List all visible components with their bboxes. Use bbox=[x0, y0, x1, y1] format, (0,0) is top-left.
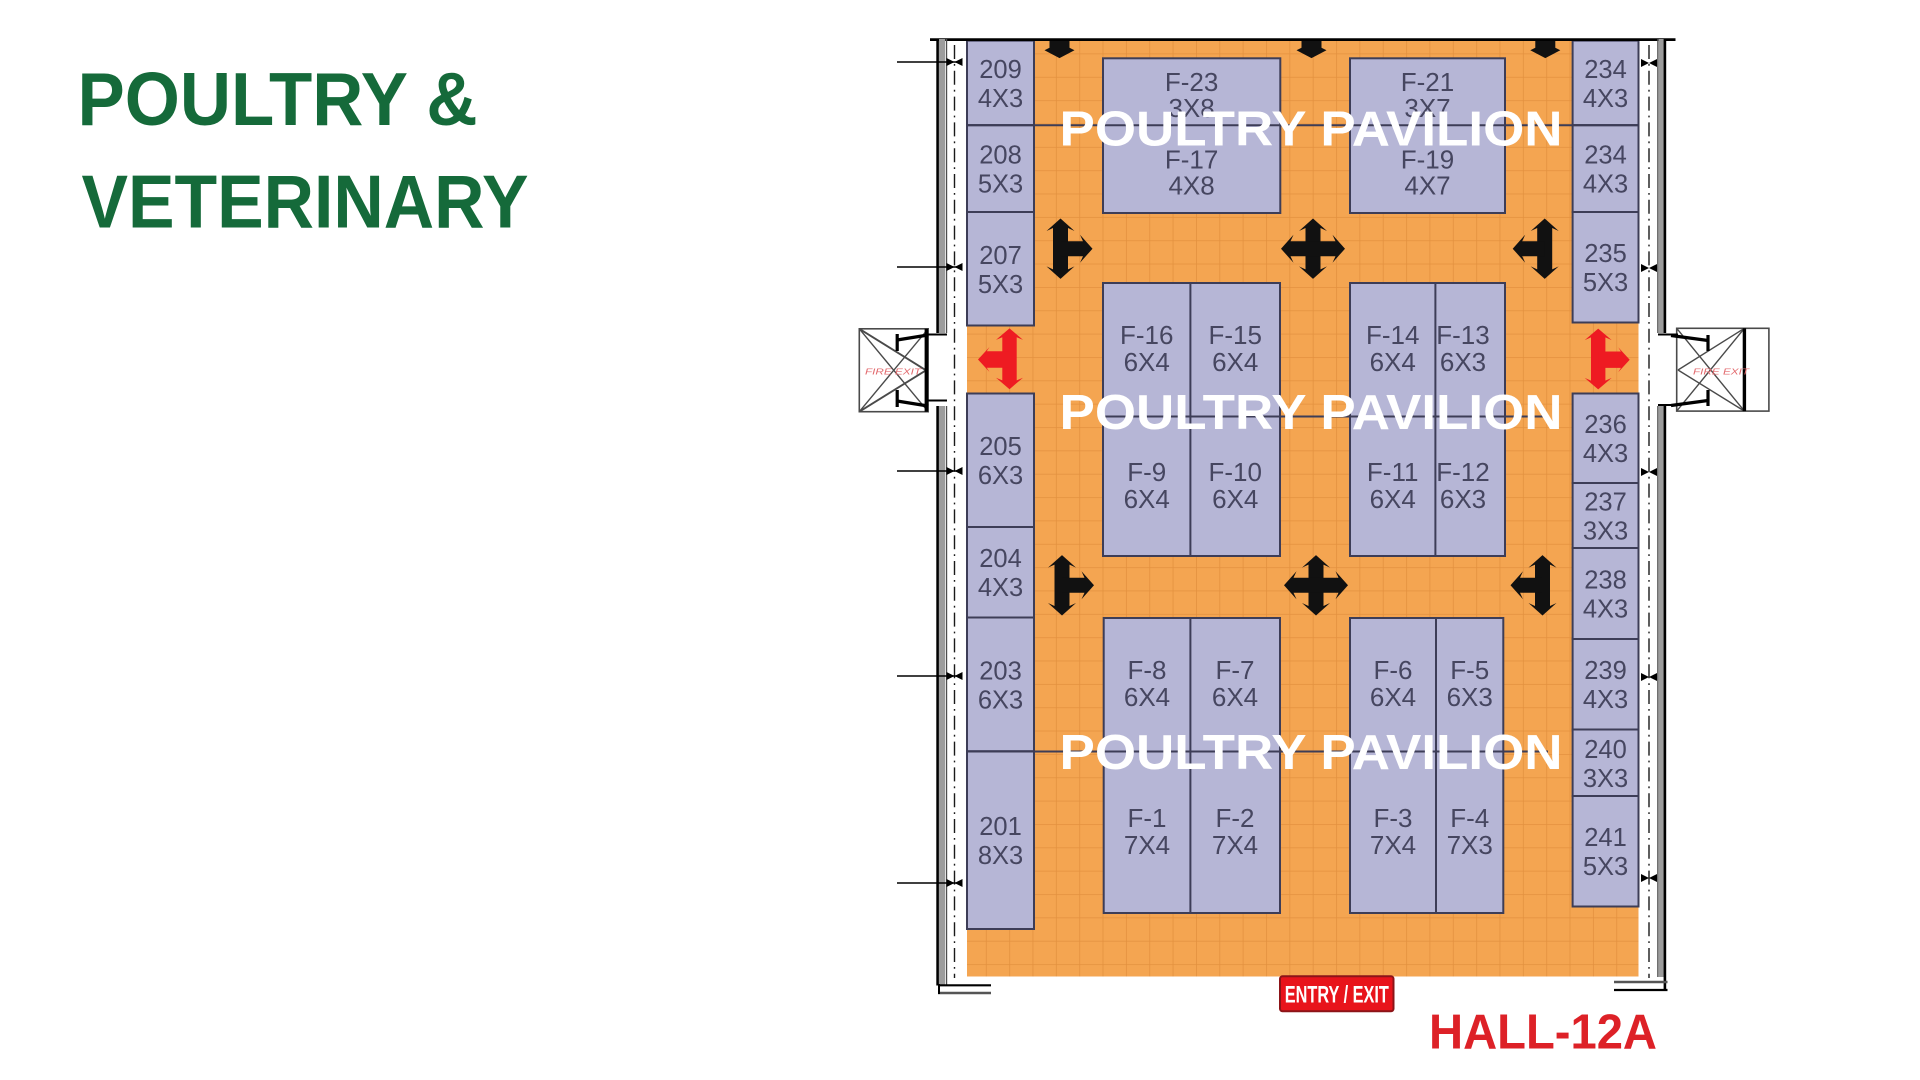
svg-text:POULTRY PAVILION: POULTRY PAVILION bbox=[1060, 102, 1563, 156]
svg-text:7X4: 7X4 bbox=[1124, 830, 1170, 860]
svg-text:4X3: 4X3 bbox=[978, 85, 1023, 113]
svg-text:3X3: 3X3 bbox=[1583, 518, 1628, 546]
svg-text:F-9: F-9 bbox=[1127, 457, 1166, 487]
svg-text:6X4: 6X4 bbox=[1212, 484, 1258, 514]
svg-text:234: 234 bbox=[1584, 56, 1627, 84]
svg-text:F-2: F-2 bbox=[1216, 803, 1255, 833]
svg-text:6X3: 6X3 bbox=[978, 462, 1023, 490]
svg-text:6X4: 6X4 bbox=[1212, 347, 1258, 377]
svg-text:7X4: 7X4 bbox=[1370, 830, 1416, 860]
svg-text:240: 240 bbox=[1584, 736, 1627, 764]
svg-text:204: 204 bbox=[979, 545, 1022, 573]
svg-text:3X3: 3X3 bbox=[1583, 765, 1628, 793]
svg-text:F-1: F-1 bbox=[1128, 803, 1167, 833]
svg-text:241: 241 bbox=[1584, 824, 1627, 852]
svg-text:4X3: 4X3 bbox=[1583, 171, 1628, 199]
svg-text:VETERINARY: VETERINARY bbox=[82, 159, 529, 243]
svg-text:4X3: 4X3 bbox=[978, 574, 1023, 602]
svg-text:F-11: F-11 bbox=[1367, 457, 1419, 487]
svg-text:6X3: 6X3 bbox=[1447, 682, 1493, 712]
svg-text:6X3: 6X3 bbox=[1440, 484, 1486, 514]
svg-text:F-10: F-10 bbox=[1208, 457, 1261, 487]
svg-text:6X4: 6X4 bbox=[1124, 347, 1170, 377]
svg-text:F-14: F-14 bbox=[1366, 320, 1419, 350]
svg-text:201: 201 bbox=[979, 813, 1022, 841]
svg-text:F-12: F-12 bbox=[1436, 457, 1489, 487]
svg-text:207: 207 bbox=[979, 242, 1022, 270]
svg-text:F-15: F-15 bbox=[1208, 320, 1261, 350]
svg-text:6X4: 6X4 bbox=[1370, 484, 1416, 514]
svg-text:6X4: 6X4 bbox=[1212, 682, 1258, 712]
svg-text:POULTRY PAVILION: POULTRY PAVILION bbox=[1060, 386, 1563, 440]
svg-text:236: 236 bbox=[1584, 411, 1627, 439]
svg-text:203: 203 bbox=[979, 657, 1022, 685]
svg-text:4X7: 4X7 bbox=[1404, 171, 1450, 201]
svg-text:POULTRY &: POULTRY & bbox=[78, 57, 478, 141]
svg-text:5X3: 5X3 bbox=[978, 171, 1023, 199]
svg-text:4X3: 4X3 bbox=[1583, 596, 1628, 624]
svg-text:HALL-12A: HALL-12A bbox=[1429, 1006, 1657, 1060]
svg-text:6X4: 6X4 bbox=[1370, 347, 1416, 377]
svg-text:237: 237 bbox=[1584, 489, 1627, 517]
svg-text:6X3: 6X3 bbox=[978, 686, 1023, 714]
svg-text:POULTRY PAVILION: POULTRY PAVILION bbox=[1060, 726, 1563, 780]
svg-text:FIRE EXIT: FIRE EXIT bbox=[865, 367, 922, 377]
svg-text:5X3: 5X3 bbox=[1583, 269, 1628, 297]
svg-text:6X3: 6X3 bbox=[1440, 347, 1486, 377]
svg-text:235: 235 bbox=[1584, 240, 1627, 268]
svg-text:5X3: 5X3 bbox=[1583, 853, 1628, 881]
svg-text:4X8: 4X8 bbox=[1168, 171, 1214, 201]
svg-text:6X4: 6X4 bbox=[1370, 682, 1416, 712]
svg-text:F-3: F-3 bbox=[1374, 803, 1413, 833]
svg-text:6X4: 6X4 bbox=[1124, 682, 1170, 712]
svg-text:208: 208 bbox=[979, 142, 1022, 170]
svg-text:F-7: F-7 bbox=[1216, 655, 1255, 685]
svg-text:F-5: F-5 bbox=[1450, 655, 1489, 685]
svg-text:5X3: 5X3 bbox=[978, 271, 1023, 299]
svg-text:209: 209 bbox=[979, 56, 1022, 84]
svg-text:7X4: 7X4 bbox=[1212, 830, 1258, 860]
svg-text:205: 205 bbox=[979, 433, 1022, 461]
svg-text:4X3: 4X3 bbox=[1583, 85, 1628, 113]
svg-text:7X3: 7X3 bbox=[1447, 830, 1493, 860]
svg-text:6X4: 6X4 bbox=[1124, 484, 1170, 514]
svg-text:4X3: 4X3 bbox=[1583, 440, 1628, 468]
svg-text:238: 238 bbox=[1584, 567, 1627, 595]
svg-text:234: 234 bbox=[1584, 142, 1627, 170]
svg-text:F-6: F-6 bbox=[1374, 655, 1413, 685]
svg-text:8X3: 8X3 bbox=[978, 842, 1023, 870]
svg-text:F-16: F-16 bbox=[1120, 320, 1173, 350]
svg-text:F-4: F-4 bbox=[1450, 803, 1489, 833]
svg-text:ENTRY / EXIT: ENTRY / EXIT bbox=[1285, 982, 1389, 1009]
svg-text:4X3: 4X3 bbox=[1583, 686, 1628, 714]
svg-text:239: 239 bbox=[1584, 657, 1627, 685]
svg-text:F-13: F-13 bbox=[1436, 320, 1489, 350]
svg-text:FIRE EXIT: FIRE EXIT bbox=[1693, 367, 1750, 377]
svg-text:F-8: F-8 bbox=[1128, 655, 1167, 685]
